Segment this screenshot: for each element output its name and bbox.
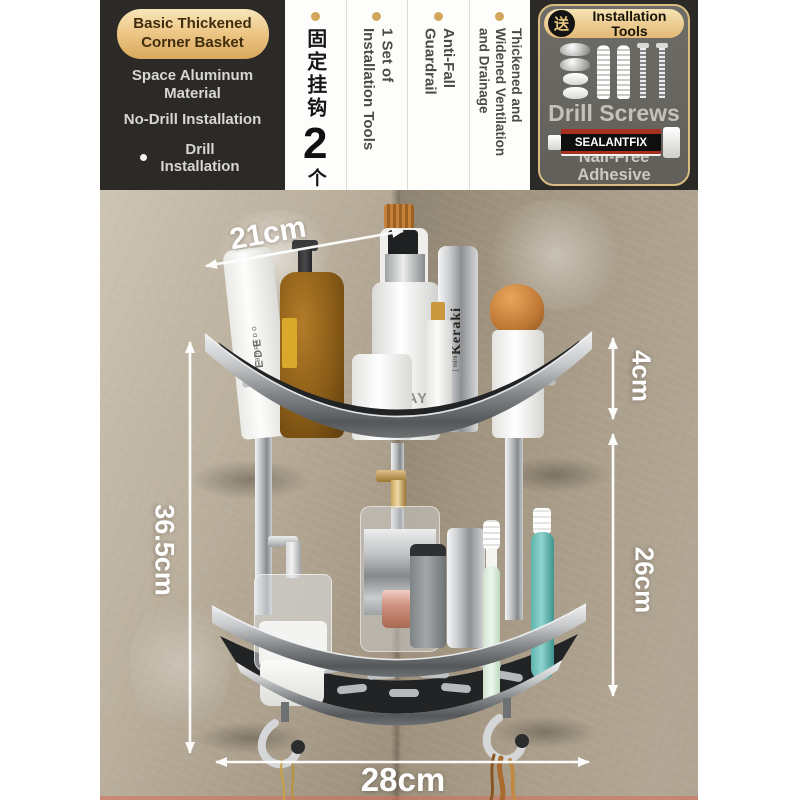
- label-28cm: 28cm: [361, 761, 445, 799]
- sealant-label: SEALANTFIX: [561, 134, 661, 151]
- tools-label: 1 Set of Installation Tools: [358, 28, 396, 186]
- sealant-tube-graphic: SEALANTFIX: [548, 129, 680, 144]
- header-right-panel: 送 Installation Tools Drill Screws: [530, 0, 698, 190]
- gift-title: Installation Tools: [579, 9, 680, 38]
- drainage-label: Thickened and Widened Ventilation and Dr…: [475, 28, 524, 186]
- header-left-panel: Basic Thickened Corner Basket Space Alum…: [100, 0, 285, 190]
- tube-nozzle-icon: [548, 135, 561, 150]
- gift-pill: 送 Installation Tools: [544, 9, 684, 38]
- gold-dot-icon: [311, 12, 320, 21]
- label-4cm: 4cm: [626, 350, 657, 402]
- hooks-unit: 个: [302, 168, 329, 187]
- screw-caps-icon: [560, 43, 590, 99]
- promo-header: Basic Thickened Corner Basket Space Alum…: [100, 0, 698, 190]
- hooks-label-cn: 固定挂钩: [301, 28, 330, 120]
- column-hooks: 固定挂钩 2 个: [285, 0, 346, 190]
- tube-tail-icon: [663, 127, 680, 158]
- wall-anchor-icon: [597, 45, 610, 99]
- title-badge: Basic Thickened Corner Basket: [117, 9, 269, 59]
- hooks-count: 2: [303, 122, 327, 166]
- content-block: Basic Thickened Corner Basket Space Alum…: [100, 0, 698, 800]
- gift-box: 送 Installation Tools Drill Screws: [538, 4, 690, 186]
- bullet-dot-icon: [140, 154, 147, 161]
- wall-anchor-icon: [617, 45, 630, 99]
- column-drainage: Thickened and Widened Ventilation and Dr…: [469, 0, 531, 190]
- gold-dot-icon: [495, 12, 504, 21]
- label-36-5cm: 36.5cm: [149, 504, 180, 596]
- drill-screws-label: Drill Screws: [548, 102, 680, 125]
- dimension-lines: [100, 190, 698, 800]
- feature-no-drill: No-Drill Installation: [112, 111, 274, 129]
- column-guardrail: Anti-Fall Guardrail: [407, 0, 469, 190]
- header-middle-panel: 固定挂钩 2 个 1 Set of Installation Tools Ant…: [285, 0, 530, 190]
- gift-icon: 送: [548, 10, 575, 37]
- column-tools: 1 Set of Installation Tools: [346, 0, 408, 190]
- product-photo: BYREDO SUEDE OLAY Keraki: [100, 190, 698, 800]
- label-26cm: 26cm: [629, 547, 660, 614]
- feature-material: Space Aluminum Material: [112, 67, 274, 103]
- product-image-page: Basic Thickened Corner Basket Space Alum…: [0, 0, 800, 800]
- feature-drill: Drill Installation: [155, 141, 245, 176]
- feature-drill-row: Drill Installation: [140, 141, 245, 176]
- hooks-stack: 固定挂钩 2 个: [301, 28, 330, 187]
- guardrail-label: Anti-Fall Guardrail: [420, 28, 458, 186]
- screw-icon: [656, 43, 668, 99]
- screws-graphic: [560, 43, 668, 99]
- screw-icon: [637, 43, 649, 99]
- gold-dot-icon: [434, 12, 443, 21]
- gold-dot-icon: [372, 12, 381, 21]
